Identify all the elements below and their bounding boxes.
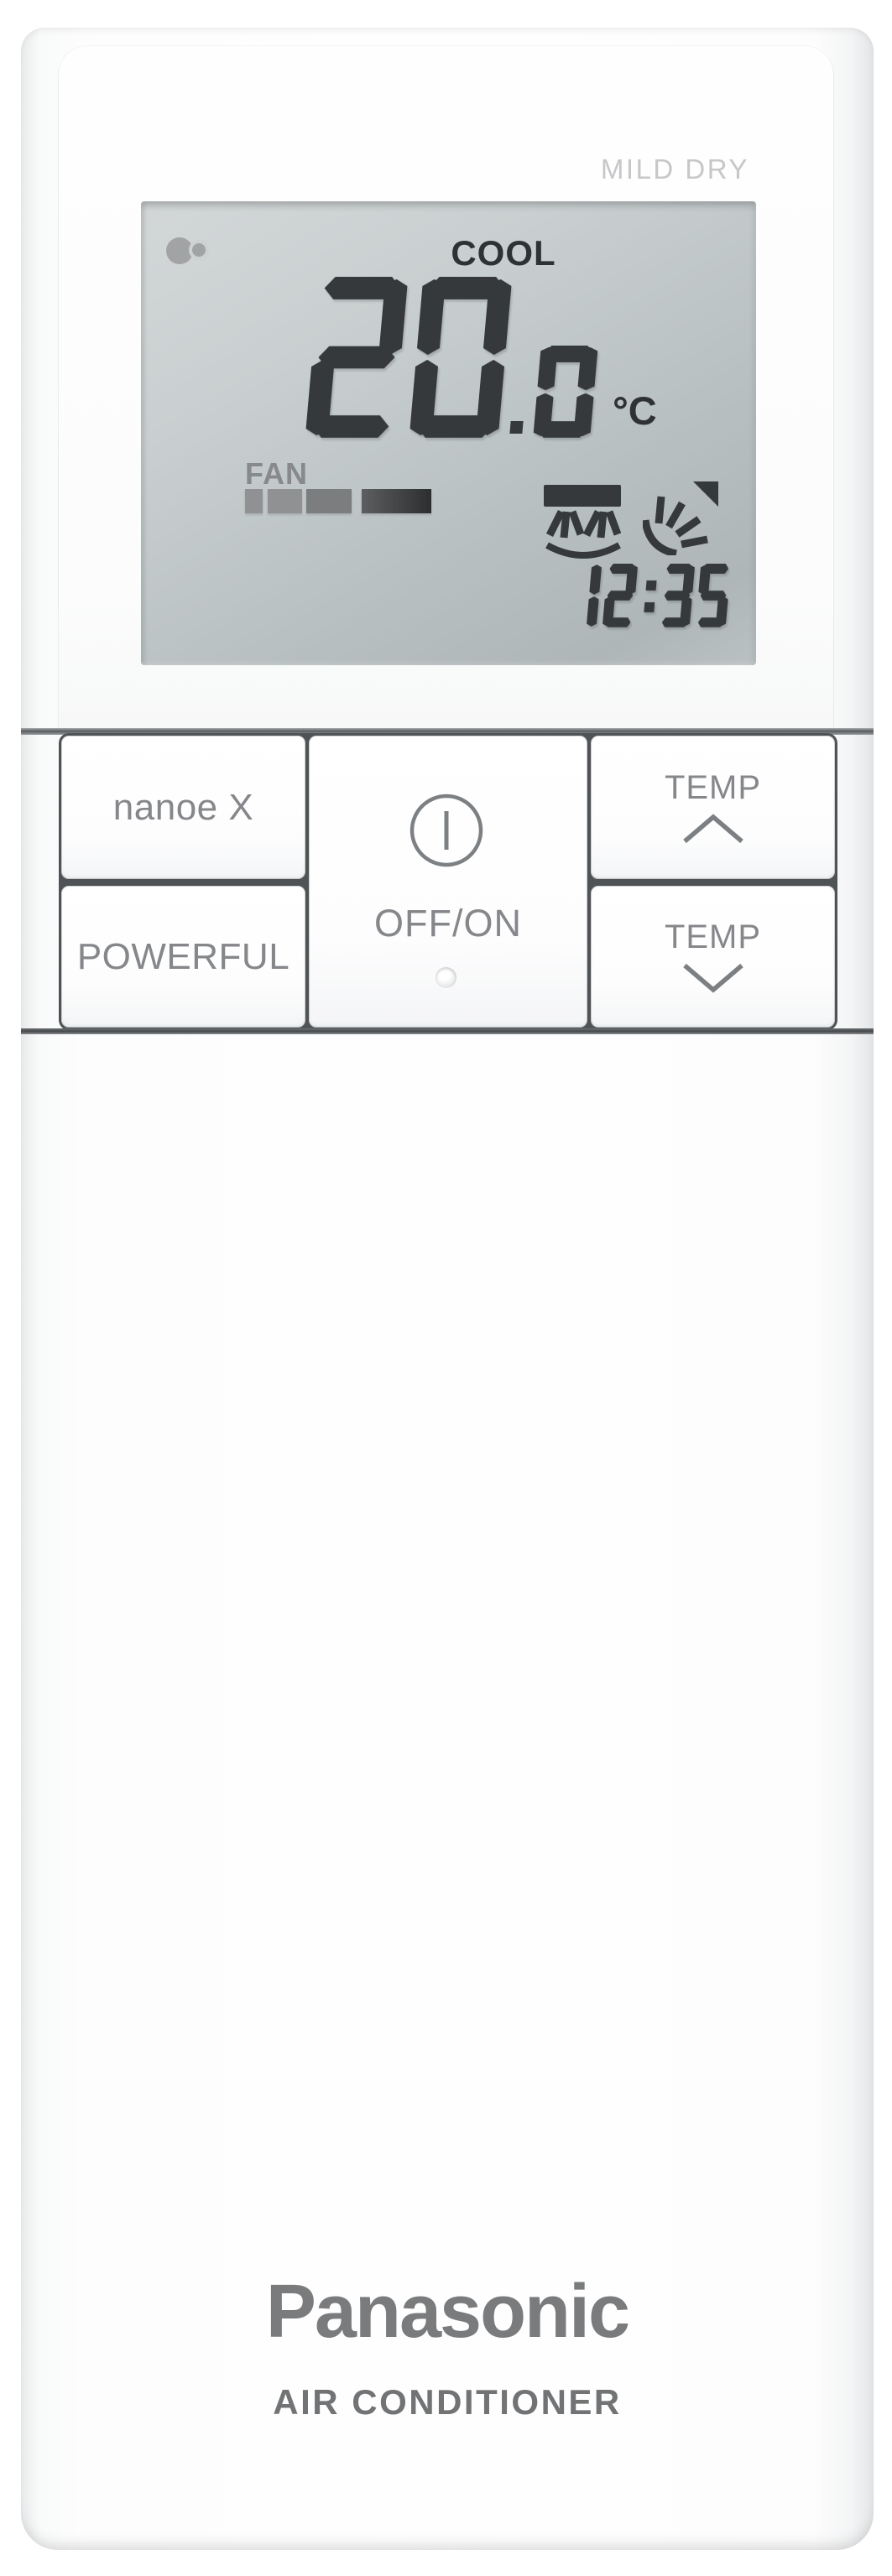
temperature-decimal-point — [509, 421, 523, 434]
seven-segment-digit — [409, 277, 513, 438]
fan-speed-bar — [306, 489, 352, 513]
fan-speed-bars — [245, 489, 431, 513]
fan-speed-bar — [245, 489, 263, 513]
temperature-decimal-digit — [533, 346, 598, 438]
nanoe-x-button[interactable]: nanoe X — [61, 736, 305, 879]
lcd-screen: COOL °C FAN — [141, 201, 756, 665]
seven-segment-digit — [660, 564, 696, 627]
button-panel: nanoe X OFF/ON TEMP POWERFUL T — [59, 733, 837, 1030]
air-swing-vertical-icon — [542, 483, 624, 574]
fan-speed-bar — [268, 489, 302, 513]
panasonic-logo: Panasonic — [21, 2269, 874, 2355]
chevron-down-icon — [681, 962, 745, 994]
mode-label: COOL — [420, 233, 587, 273]
temp-up-button-label: TEMP — [591, 771, 835, 804]
off-on-button[interactable]: OFF/ON — [309, 736, 587, 1028]
screenshot-background: MILD DRY COOL °C FAN — [0, 0, 892, 2576]
panel-divider-bottom — [21, 1028, 874, 1034]
temperature-integer-digits — [305, 277, 528, 438]
clock — [566, 564, 738, 627]
powerful-button-label: POWERFUL — [61, 936, 305, 978]
air-swing-horizontal-icon — [643, 481, 718, 555]
seven-segment-digit — [305, 277, 409, 438]
power-icon — [409, 793, 484, 868]
nanoe-x-button-label: nanoe X — [61, 787, 305, 829]
seven-segment-digit — [696, 564, 732, 627]
signal-led — [436, 967, 456, 988]
off-on-button-label: OFF/ON — [309, 902, 587, 945]
nanoe-indicator-icon — [166, 237, 193, 264]
fan-speed-bar — [362, 489, 431, 513]
clock-colon — [639, 564, 660, 627]
fan-label: FAN — [245, 456, 308, 492]
nanoe-indicator-icon — [192, 243, 206, 257]
temp-up-button[interactable]: TEMP — [591, 736, 835, 879]
display-panel: MILD DRY COOL °C FAN — [59, 46, 833, 728]
seven-segment-digit — [533, 346, 598, 438]
temp-down-button[interactable]: TEMP — [591, 886, 835, 1028]
chevron-up-icon — [681, 813, 745, 845]
product-subtitle: AIR CONDITIONER — [21, 2382, 874, 2422]
temp-down-button-label: TEMP — [591, 920, 835, 954]
seven-segment-digit — [566, 564, 602, 627]
mild-dry-label: MILD DRY — [601, 154, 749, 185]
powerful-button[interactable]: POWERFUL — [61, 886, 305, 1028]
temperature-unit: °C — [613, 388, 657, 434]
seven-segment-digit — [602, 564, 639, 627]
remote-body: MILD DRY COOL °C FAN — [21, 28, 874, 2550]
